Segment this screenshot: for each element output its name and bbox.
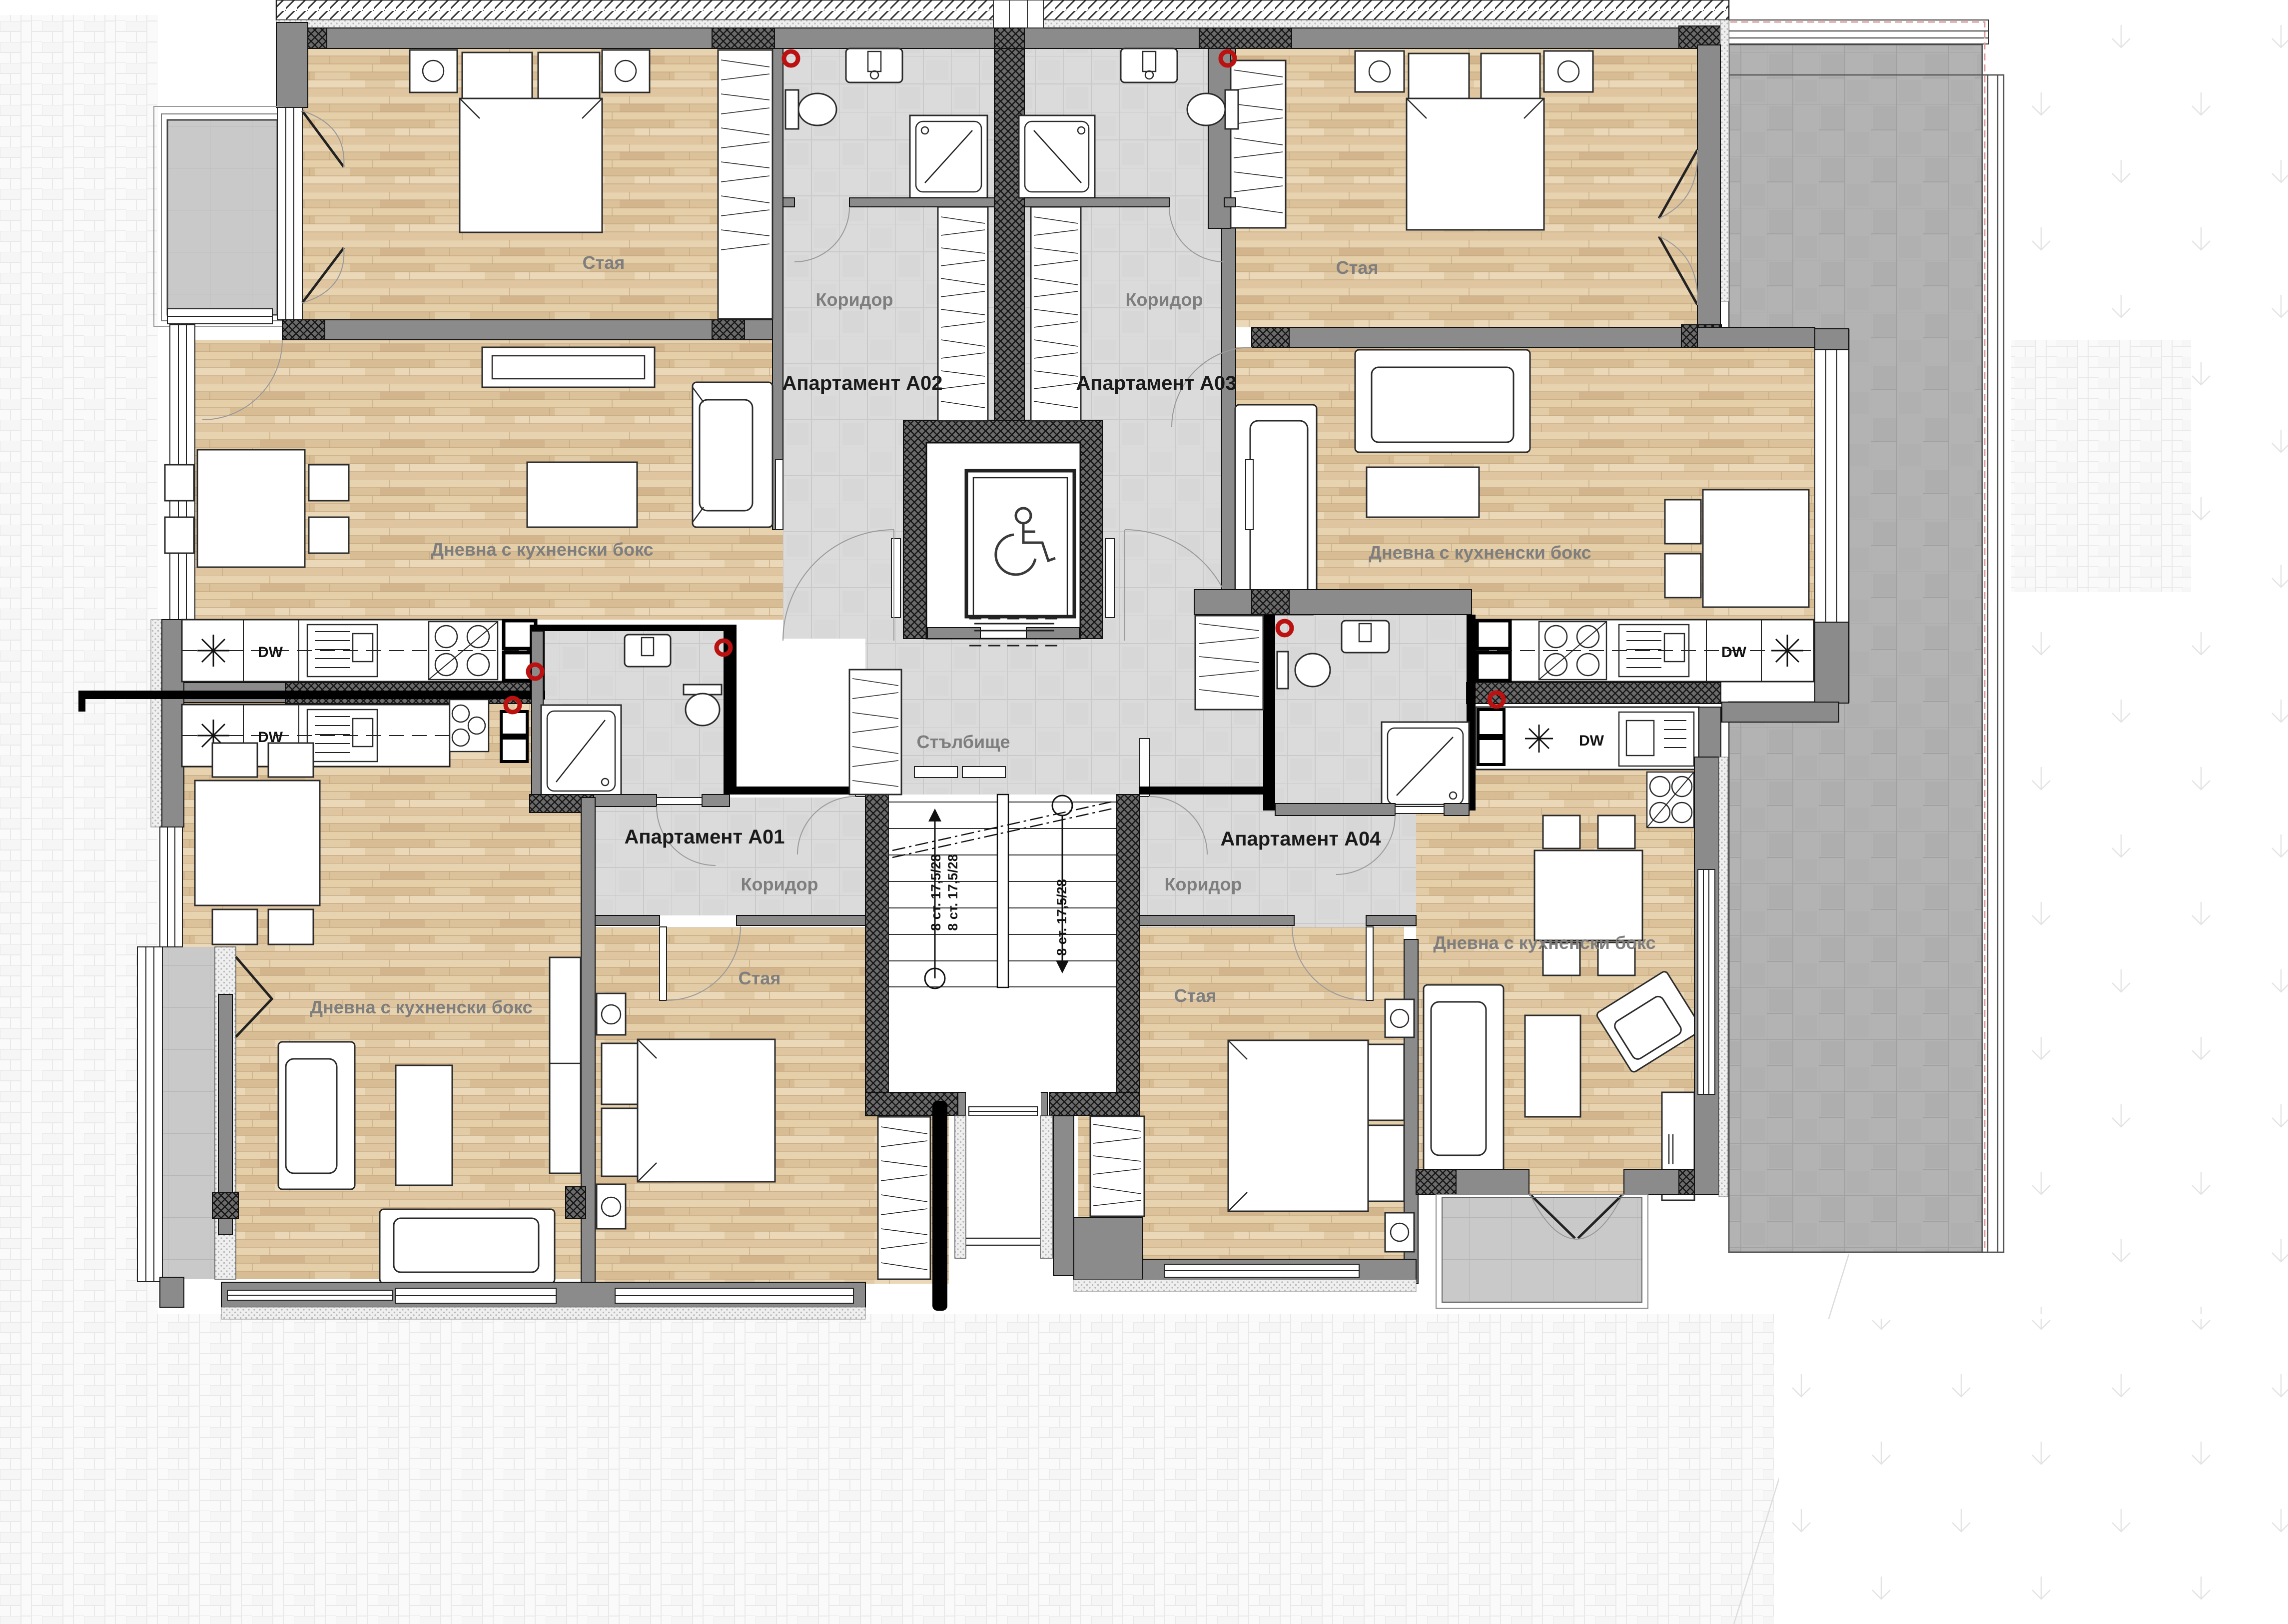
svg-text:Апартамент А01: Апартамент А01 — [624, 826, 784, 848]
svg-text:DW: DW — [1721, 644, 1747, 661]
svg-text:Стая: Стая — [739, 968, 781, 988]
svg-text:8 ст. 17,5/28: 8 ст. 17,5/28 — [945, 854, 960, 930]
svg-text:Дневна с кухненски бокс: Дневна с кухненски бокс — [1433, 932, 1655, 953]
svg-text:8 ст. 17,5/28: 8 ст. 17,5/28 — [1054, 879, 1069, 955]
svg-text:Дневна с кухненски бокс: Дневна с кухненски бокс — [310, 997, 532, 1017]
svg-text:Коридор: Коридор — [1126, 289, 1203, 310]
svg-text:Дневна с кухненски бокс: Дневна с кухненски бокс — [431, 539, 653, 560]
svg-text:Стая: Стая — [1174, 985, 1217, 1006]
svg-text:Коридор: Коридор — [1165, 874, 1242, 894]
svg-text:DW: DW — [258, 644, 283, 661]
svg-text:Стая: Стая — [1336, 257, 1379, 278]
svg-text:Коридор: Коридор — [816, 289, 893, 310]
svg-text:Коридор: Коридор — [741, 874, 818, 894]
svg-text:Стая: Стая — [583, 252, 625, 273]
svg-text:Дневна с кухненски бокс: Дневна с кухненски бокс — [1369, 542, 1591, 563]
svg-text:DW: DW — [1579, 733, 1604, 749]
svg-text:Апартамент А03: Апартамент А03 — [1076, 372, 1236, 394]
svg-text:Стълбище: Стълбище — [916, 732, 1010, 752]
svg-text:8 ст. 17,5/28: 8 ст. 17,5/28 — [928, 854, 943, 930]
svg-text:Апартамент А04: Апартамент А04 — [1220, 828, 1381, 850]
svg-text:Апартамент А02: Апартамент А02 — [782, 372, 942, 394]
